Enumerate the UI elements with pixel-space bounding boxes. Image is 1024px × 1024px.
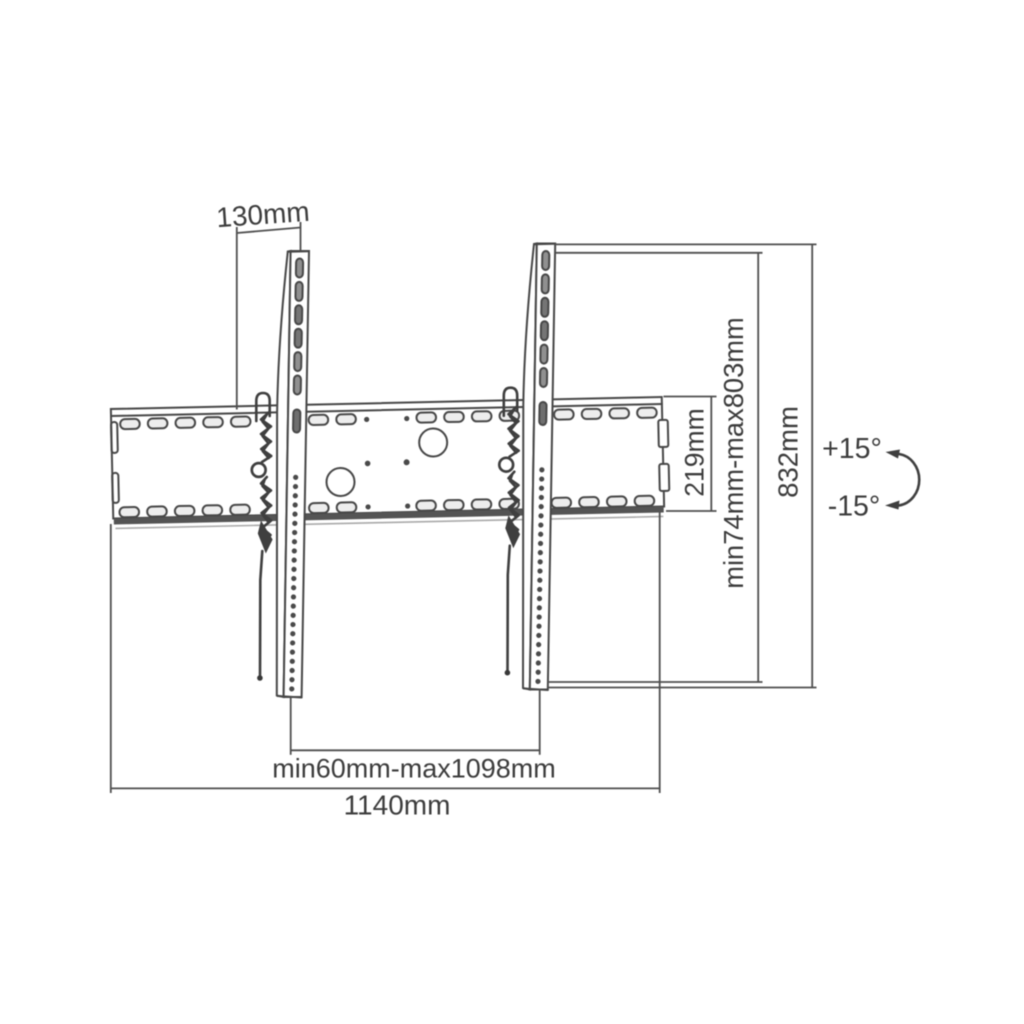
svg-text:min60mm-max1098mm: min60mm-max1098mm	[272, 754, 556, 784]
svg-text:1140mm: 1140mm	[344, 790, 451, 821]
svg-text:+15°: +15°	[822, 433, 882, 465]
svg-text:130mm: 130mm	[215, 196, 310, 233]
svg-text:min74mm-max803mm: min74mm-max803mm	[718, 317, 749, 589]
svg-text:219mm: 219mm	[680, 408, 710, 496]
svg-text:832mm: 832mm	[773, 406, 804, 498]
svg-text:-15°: -15°	[828, 491, 881, 523]
